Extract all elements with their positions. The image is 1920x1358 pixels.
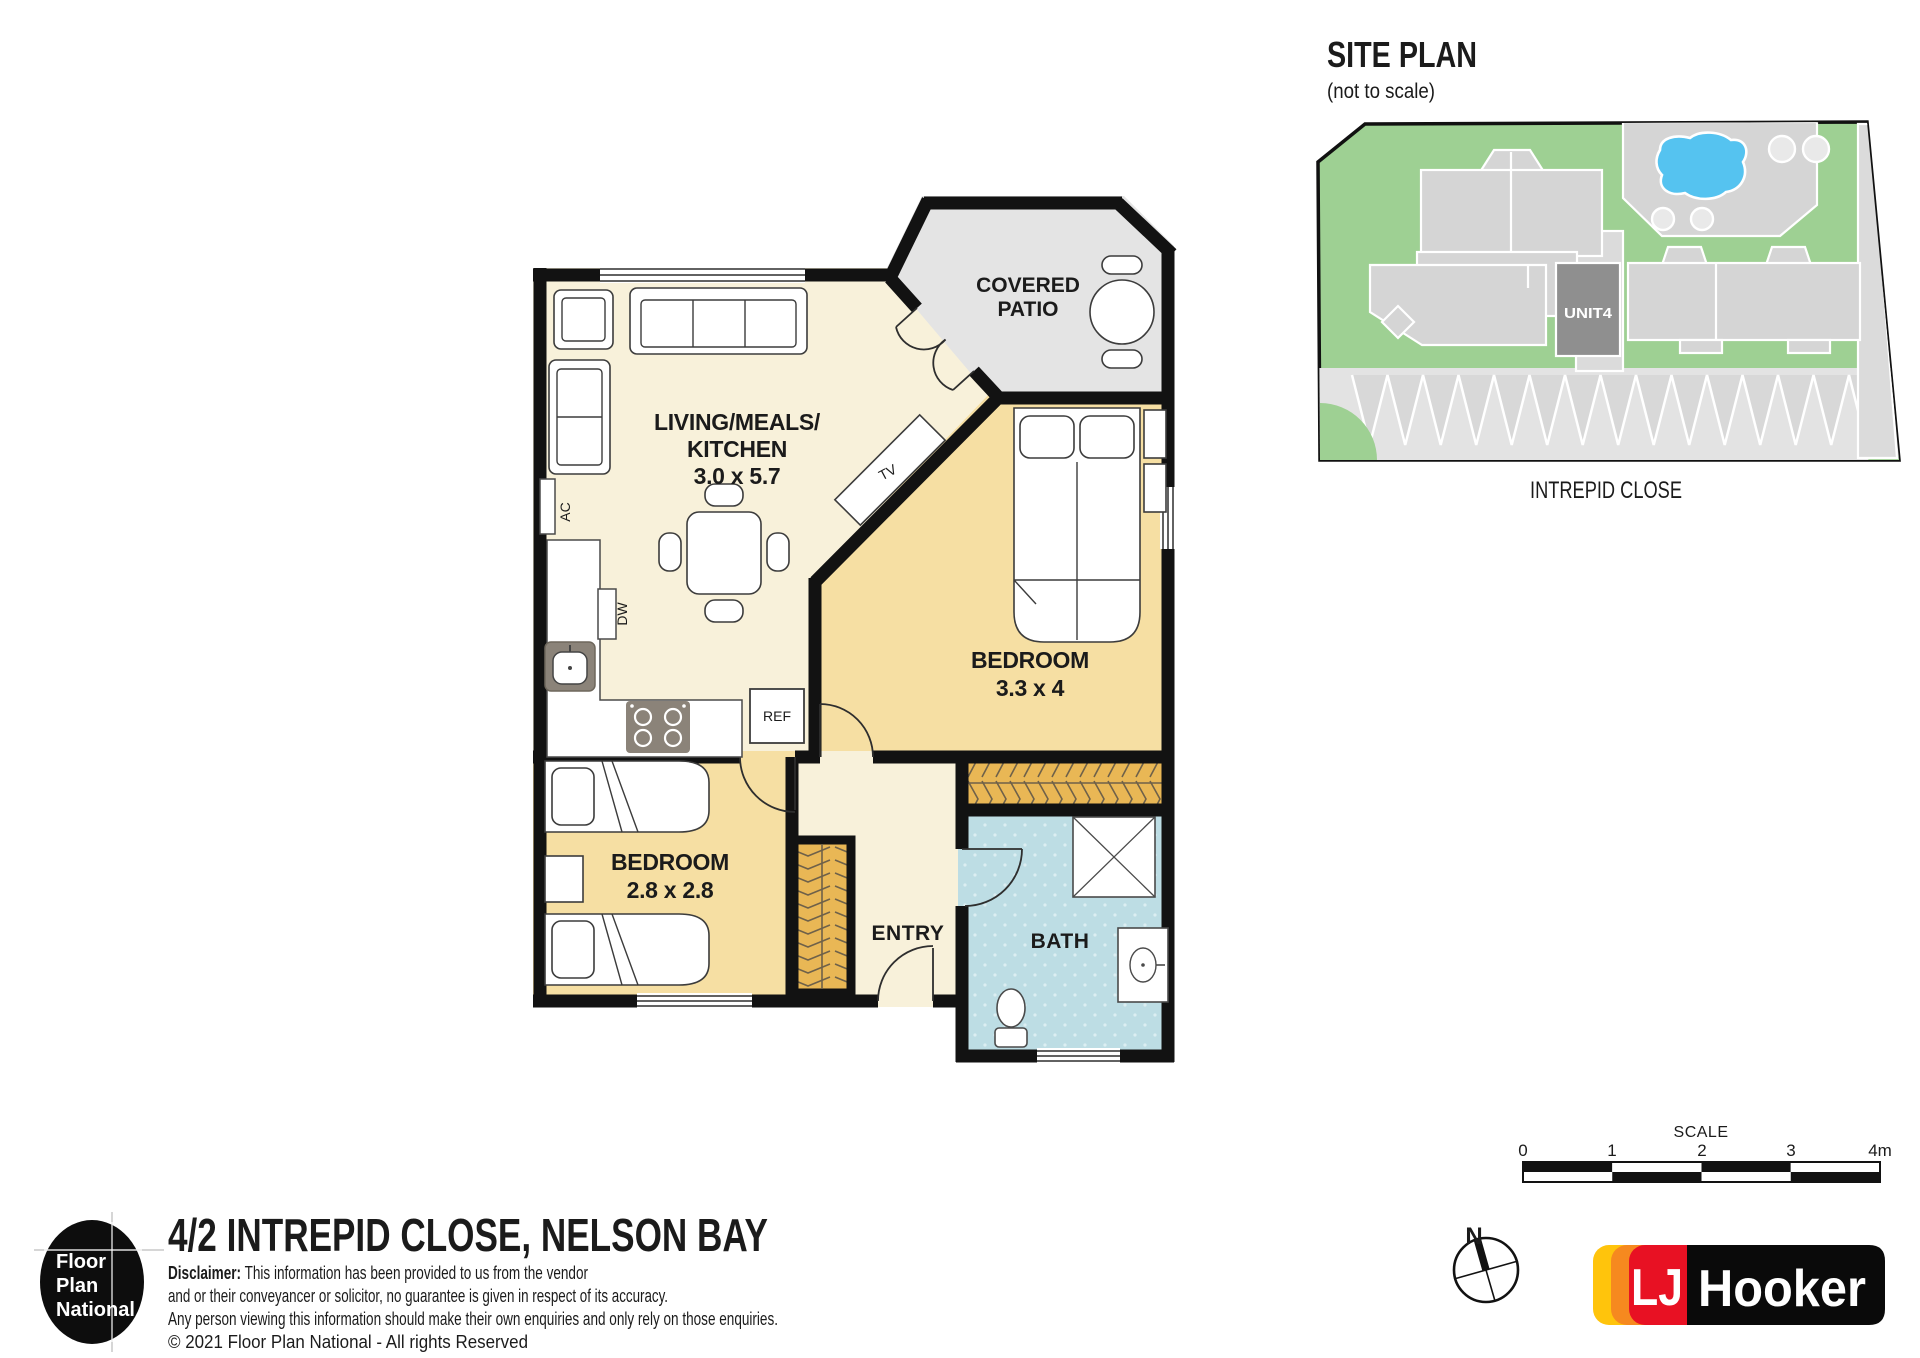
entry-label: ENTRY (872, 922, 945, 945)
dining-chair (767, 533, 789, 571)
dining-table (687, 512, 761, 594)
bath-label: BATH (1031, 930, 1090, 953)
disclaimer-line-1: Disclaimer: This information has been pr… (168, 1263, 588, 1283)
scale-tick-2: 2 (1697, 1141, 1706, 1160)
hooker-wordmark: Hooker (1698, 1260, 1866, 1318)
cooktop (626, 701, 690, 753)
living-label-2: KITCHEN (687, 436, 787, 462)
lj-monogram: LJ (1631, 1259, 1683, 1317)
fpn-logo: Floor Plan National (34, 1212, 164, 1352)
floor-plan: LIVING/MEALS/ KITCHEN 3.0 x 5.7 COVERED … (533, 196, 1176, 1064)
site-plan-title: SITE PLAN (1327, 34, 1477, 75)
scale-tick-4: 4m (1868, 1141, 1892, 1160)
scale-tick-3: 3 (1786, 1141, 1795, 1160)
bedroom1-label: BEDROOM (971, 647, 1089, 673)
pool (1656, 133, 1746, 199)
building-c (1628, 263, 1860, 340)
disclaimer-line-2: and or their conveyancer or solicitor, n… (168, 1286, 668, 1306)
bedroom2-dims: 2.8 x 2.8 (627, 877, 714, 903)
bedroom2-label: BEDROOM (611, 849, 729, 875)
floorplan-canvas: SITE PLAN (not to scale) (0, 0, 1920, 1358)
compass: N (1454, 1223, 1518, 1302)
patio-label-1: COVERED (976, 274, 1080, 297)
ac-label: AC (557, 502, 573, 521)
pillow (552, 768, 594, 825)
robe-bedroom2 (794, 840, 851, 993)
armchair (554, 290, 613, 349)
site-plan: SITE PLAN (not to scale) (1316, 34, 1906, 504)
living-label-1: LIVING/MEALS/ (654, 409, 821, 435)
garden-circle (1769, 136, 1795, 162)
lj-hooker-logo: LJ Hooker (1593, 1245, 1885, 1325)
building-c-tab (1680, 340, 1722, 353)
bedside-table (1144, 410, 1166, 458)
fpn-line-2: Plan (56, 1275, 98, 1297)
site-plan-subtitle: (not to scale) (1327, 80, 1435, 103)
bedside-table (1144, 464, 1166, 512)
fpn-line-3: National (56, 1299, 135, 1321)
patio-chair (1102, 350, 1142, 368)
nightstand (545, 856, 583, 902)
pillow (1020, 416, 1074, 458)
patio-label-2: PATIO (997, 298, 1058, 321)
patio-table (1090, 280, 1154, 344)
loveseat (549, 360, 610, 474)
robe-bedroom1 (964, 761, 1170, 806)
dining-chair (705, 600, 743, 622)
living-dims: 3.0 x 5.7 (694, 463, 781, 489)
ac-unit (540, 479, 555, 534)
pillow (552, 921, 594, 978)
disclaimer-line-3: Any person viewing this information shou… (168, 1309, 778, 1329)
scale-bar-graphic (1523, 1162, 1880, 1182)
address-title: 4/2 INTREPID CLOSE, NELSON BAY (168, 1209, 768, 1261)
garden-circle (1691, 208, 1713, 230)
copyright-line: © 2021 Floor Plan National - All rights … (168, 1332, 528, 1352)
floorplan-page: SITE PLAN (not to scale) (0, 0, 1920, 1358)
toilet (995, 989, 1027, 1047)
patio-chair (1102, 256, 1142, 274)
dining-chair (659, 533, 681, 571)
footer-text: 4/2 INTREPID CLOSE, NELSON BAY Disclaime… (168, 1209, 778, 1352)
scale-bar: SCALE 0 1 2 3 4m (1518, 1124, 1892, 1182)
dw-label: DW (614, 602, 630, 626)
living-window (600, 267, 805, 283)
disclaimer-rest: This information has been provided to us… (245, 1263, 588, 1283)
ref-label: REF (763, 708, 791, 724)
pillow (1080, 416, 1134, 458)
garden-circle (1803, 136, 1829, 162)
fpn-line-1: Floor (56, 1251, 106, 1273)
scale-tick-1: 1 (1607, 1141, 1616, 1160)
scale-title: SCALE (1674, 1124, 1729, 1141)
building-c-tab (1788, 340, 1830, 353)
compass-north-label: N (1465, 1223, 1482, 1250)
bedroom1-dims: 3.3 x 4 (996, 675, 1065, 701)
garden-circle (1652, 208, 1674, 230)
bath-window (1037, 1048, 1120, 1064)
vanity (1118, 928, 1168, 1002)
sofa-three-seat (630, 288, 807, 354)
kitchen-sink (545, 642, 595, 691)
disclaimer-bold: Disclaimer: (168, 1263, 241, 1283)
unit4-label: UNIT4 (1564, 305, 1613, 322)
scale-tick-0: 0 (1518, 1141, 1527, 1160)
street-label: INTREPID CLOSE (1530, 477, 1682, 504)
site-road (1316, 368, 1906, 463)
shower (1073, 817, 1155, 897)
bedroom2-window (637, 993, 752, 1009)
